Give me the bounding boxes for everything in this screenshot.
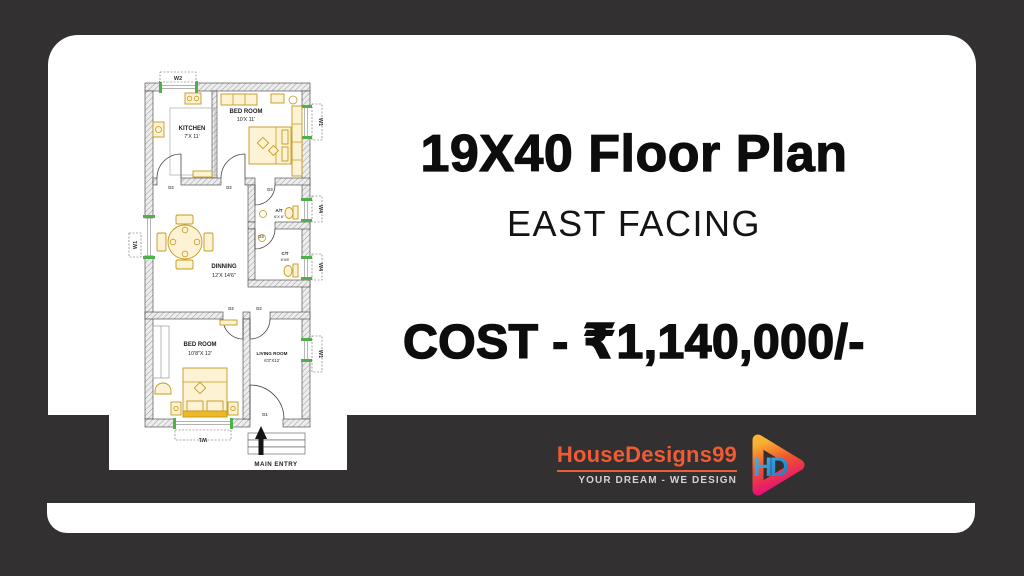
bedroom2-size: 10'8"X 12': [188, 351, 212, 357]
door-label-d3: D3: [258, 234, 264, 239]
brand-logo-icon: HD: [741, 428, 811, 502]
kitchen-label: KITCHEN: [179, 126, 206, 132]
window-label-w1: W1: [199, 436, 207, 442]
dining-label: DINNING: [211, 264, 237, 270]
door-label-d2: D2: [228, 306, 234, 311]
floor-plan: W2 W1 W1 W4 W4 W1 W1: [109, 50, 347, 470]
bottom-bar: [47, 503, 975, 533]
door-label-d2: D2: [226, 185, 232, 190]
window-label-w4: W4: [317, 263, 323, 272]
plan-furniture: [153, 93, 302, 417]
window-label-w1: W1: [317, 118, 323, 126]
attached-toilet-label: A/T: [276, 208, 283, 213]
kitchen-size: 7'X 11': [184, 134, 199, 140]
bedroom1-size: 10'X 11': [237, 117, 255, 123]
door-label-d2: D2: [168, 185, 174, 190]
brand-tagline: YOUR DREAM - WE DESIGN: [537, 475, 737, 486]
plan-title: 19X40 Floor Plan: [349, 128, 919, 180]
entry-arrow-icon: [255, 426, 267, 439]
attached-toilet-size: 6'X 6': [274, 214, 284, 219]
common-toilet-size: 6'X8': [281, 257, 290, 262]
door-label-d2: D2: [256, 306, 262, 311]
cost-text: COST - ₹1,140,000/-: [349, 318, 919, 368]
facing-subtitle: EAST FACING: [349, 206, 919, 242]
window-label-w1: W1: [133, 241, 139, 249]
door-label-d1: D1: [262, 412, 268, 417]
window-label-w4: W4: [317, 205, 323, 214]
window-label-w1: W1: [317, 350, 323, 358]
bedroom1-label: BED ROOM: [230, 109, 263, 115]
bedroom2-label: BED ROOM: [184, 342, 217, 348]
brand-monogram: HD: [753, 452, 788, 482]
headline-block: 19X40 Floor Plan EAST FACING COST - ₹1,1…: [349, 128, 919, 368]
main-entry-label: MAIN ENTRY: [254, 461, 298, 468]
living-size: 6'3"X12': [264, 358, 280, 363]
window-label-w2: W2: [174, 76, 182, 82]
brand-block: HouseDesigns99 YOUR DREAM - WE DESIGN HD: [537, 442, 811, 502]
main-entry-steps: [248, 426, 305, 455]
brand-name: HouseDesigns99: [557, 442, 737, 472]
floor-plan-drawing: W2 W1 W1 W4 W4 W1 W1: [109, 50, 347, 470]
door-label-d3: D3: [267, 187, 273, 192]
living-label: LIVING ROOM: [257, 351, 288, 356]
common-toilet-label: C/T: [282, 251, 289, 256]
dining-size: 12'X 14'6": [212, 273, 236, 279]
